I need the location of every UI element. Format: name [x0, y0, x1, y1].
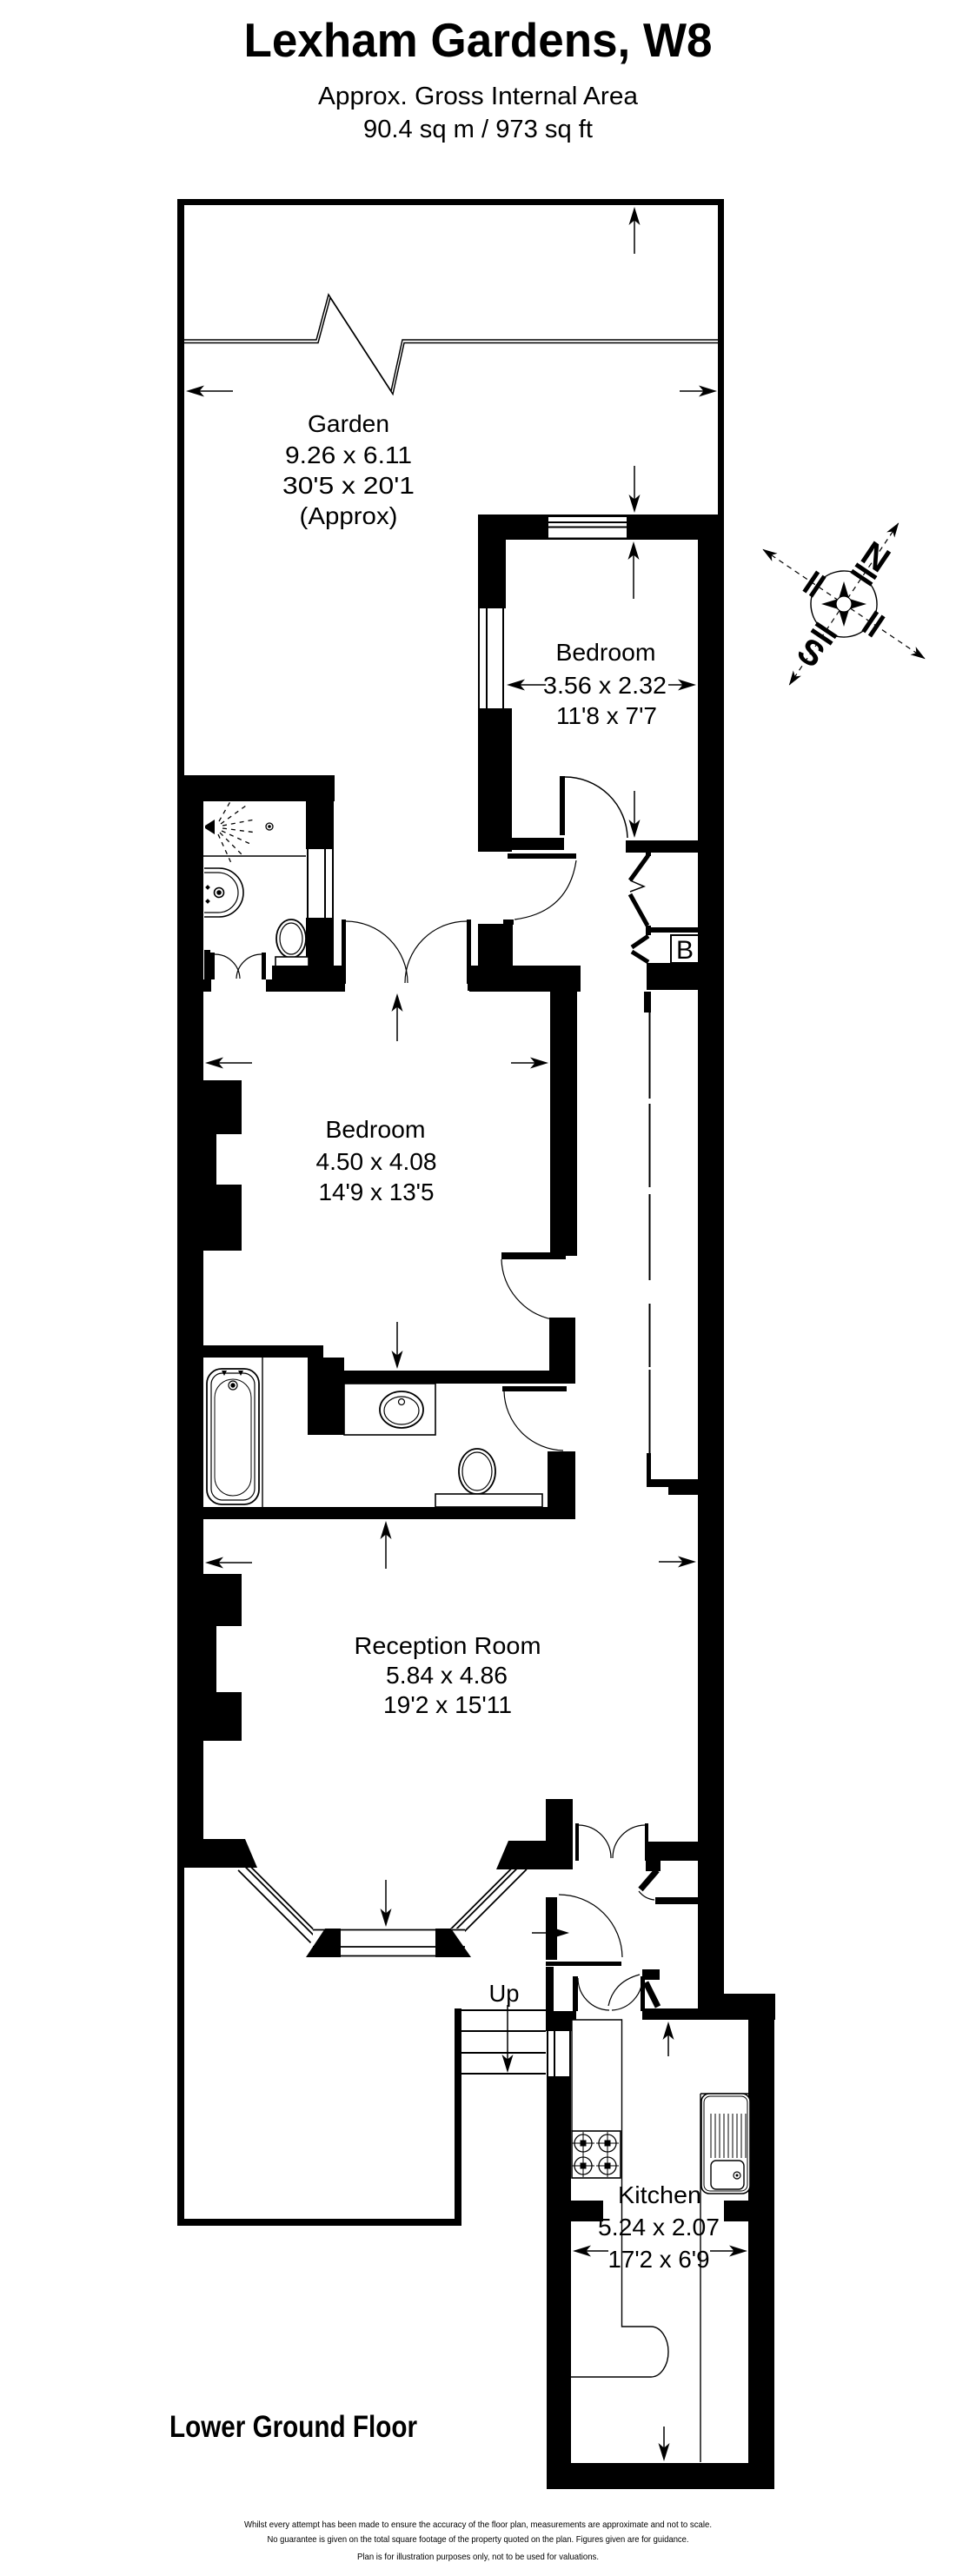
svg-text:Up: Up — [489, 1980, 520, 2007]
svg-text:11'8 x 7'7: 11'8 x 7'7 — [556, 702, 657, 729]
svg-text:3.56 x 2.32: 3.56 x 2.32 — [543, 672, 667, 699]
svg-text:Bedroom: Bedroom — [556, 639, 656, 666]
svg-text:Reception Room: Reception Room — [355, 1632, 541, 1659]
svg-text:Kitchen: Kitchen — [618, 2181, 701, 2208]
svg-text:30'5 x 20'1: 30'5 x 20'1 — [282, 472, 415, 499]
svg-text:9.26 x 6.11: 9.26 x 6.11 — [285, 442, 412, 468]
svg-text:No guarantee is given on the t: No guarantee is given on the total squar… — [268, 2534, 689, 2545]
svg-text:19'2 x 15'11: 19'2 x 15'11 — [383, 1691, 512, 1718]
svg-text:Whilst every attempt has been: Whilst every attempt has been made to en… — [244, 2520, 712, 2530]
svg-text:Bedroom: Bedroom — [326, 1116, 426, 1143]
svg-text:(Approx): (Approx) — [300, 502, 398, 529]
svg-text:Garden: Garden — [308, 410, 389, 437]
svg-text:5.24 x 2.07: 5.24 x 2.07 — [598, 2214, 720, 2241]
svg-text:Approx. Gross Internal Area: Approx. Gross Internal Area — [318, 83, 639, 110]
svg-text:90.4 sq m / 973 sq ft: 90.4 sq m / 973 sq ft — [363, 116, 593, 143]
svg-text:17'2 x 6'9: 17'2 x 6'9 — [608, 2246, 710, 2273]
svg-text:Lower Ground Floor: Lower Ground Floor — [169, 2410, 417, 2444]
svg-text:B: B — [676, 936, 694, 965]
svg-text:4.50 x 4.08: 4.50 x 4.08 — [316, 1148, 437, 1175]
svg-text:Plan is for illustration purpo: Plan is for illustration purposes only, … — [357, 2552, 599, 2562]
svg-text:Lexham Gardens, W8: Lexham Gardens, W8 — [244, 13, 713, 67]
svg-text:14'9 x 13'5: 14'9 x 13'5 — [319, 1178, 435, 1205]
svg-text:5.84 x 4.86: 5.84 x 4.86 — [386, 1662, 508, 1689]
